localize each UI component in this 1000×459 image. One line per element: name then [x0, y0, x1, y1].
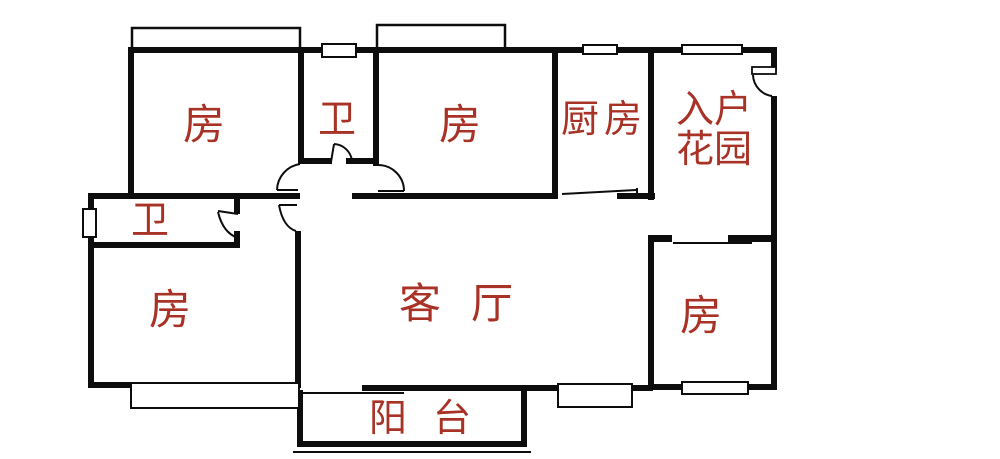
wall-balcony-bottom: [297, 441, 527, 447]
label-balcony: 阳台: [369, 400, 497, 440]
wall-kitchen-right: [648, 47, 654, 200]
wall-bath-left-right-stub-top: [234, 193, 240, 214]
wall-balcony-right: [521, 390, 527, 447]
label-bedroom-top-mid: 房: [439, 104, 481, 148]
wall-bath-top-right: [373, 47, 379, 166]
wall-bath-top-bottom-a: [298, 158, 332, 164]
wall-living-bottom: [362, 385, 558, 391]
wall-bedroom3-bottom: [88, 382, 135, 388]
window-bath-left: [83, 209, 96, 237]
entry-door-arc: [753, 75, 772, 96]
label-kitchen: 厨房: [561, 101, 647, 141]
label-bath-left: 卫: [131, 202, 169, 242]
label-bedroom-right: 房: [680, 295, 722, 339]
wall-living-top-left: [88, 193, 300, 199]
wall-bath-left-bottom: [88, 242, 240, 248]
bedroom3-door-arc: [279, 205, 296, 231]
wall-bedroom1-right: [298, 47, 304, 164]
bath-top-door-leaf: [331, 144, 334, 162]
bay-window-top-left: [132, 28, 300, 50]
window-kitchen: [583, 45, 617, 54]
wall-top: [128, 47, 777, 53]
label-living-room: 客厅: [399, 283, 543, 327]
wall-bedroom4-top-b: [728, 235, 777, 242]
window-entry-garden: [682, 45, 742, 54]
wall-bedroom1-left: [128, 47, 134, 197]
wall-living-top-right: [352, 193, 558, 199]
bay-window-top-mid: [377, 25, 505, 50]
label-bedroom-top-left: 房: [183, 104, 225, 148]
wall-bath-left-right-stub-bottom: [234, 231, 240, 248]
window-bedroom3: [131, 383, 299, 408]
entry-door-leaf: [752, 67, 776, 74]
floor-plan: 房 卫 房 厨房 入户 花园 卫 房 客厅 房 阳台: [0, 0, 1000, 459]
wall-bedroom3-right: [295, 231, 301, 388]
wall-right-main: [771, 96, 777, 390]
label-entry-garden: 入户 花园: [676, 91, 752, 171]
bedroom2-door-arc: [378, 165, 404, 191]
bedroom1-door-arc: [277, 164, 300, 190]
window-living-bottom: [558, 384, 632, 407]
wall-kitchen-left: [552, 47, 558, 199]
window-bath-top: [322, 44, 356, 57]
wall-bedroom4-left: [648, 235, 654, 390]
window-bedroom4: [682, 382, 748, 394]
label-bath-top: 卫: [318, 101, 356, 141]
label-bedroom-bottom-left: 房: [149, 289, 191, 333]
